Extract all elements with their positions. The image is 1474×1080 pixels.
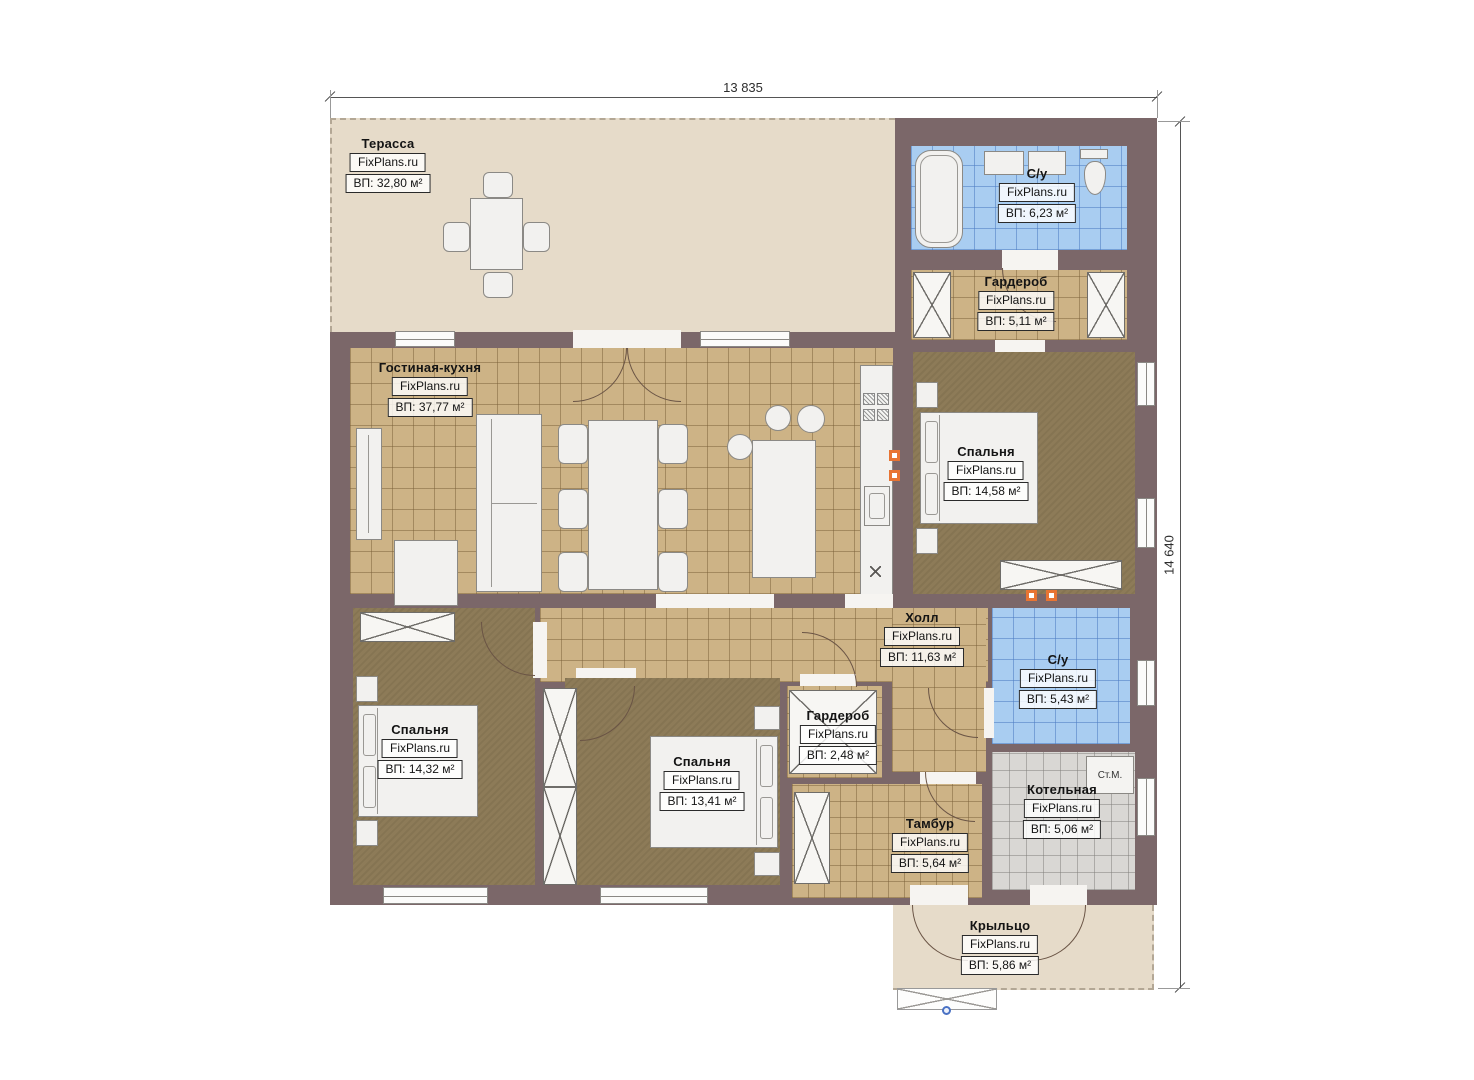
- room-name: Гостиная-кухня: [379, 360, 481, 375]
- dimension-height-label: 14 640: [1162, 535, 1177, 575]
- area-box: ВП: 2,48 м²: [799, 746, 877, 765]
- dimension-extension: [1158, 988, 1190, 989]
- dimension-line-right: [1180, 122, 1181, 988]
- terrace-table: [470, 198, 523, 270]
- nightstand: [754, 706, 780, 730]
- floor-plan-canvas: Ст.М. Терасса FixPlans.ru ВП: 32,80 м² С…: [0, 0, 1474, 1080]
- room-label-porch: Крыльцо FixPlans.ru ВП: 5,86 м²: [961, 918, 1039, 975]
- brand-box: FixPlans.ru: [962, 935, 1038, 954]
- room-name: Терасса: [362, 136, 415, 151]
- room-label-bedroom-2: Спальня FixPlans.ru ВП: 14,32 м²: [378, 722, 463, 779]
- wardrobe-cabinet: [913, 272, 951, 338]
- door-opening: [995, 340, 1045, 352]
- room-name: Гардероб: [806, 708, 869, 723]
- window: [1137, 778, 1155, 836]
- pillow: [363, 714, 376, 756]
- dining-chair: [658, 552, 688, 592]
- terrace-chair: [483, 272, 513, 298]
- area-box: ВП: 14,58 м²: [944, 482, 1029, 501]
- brand-box: FixPlans.ru: [1024, 799, 1100, 818]
- door-opening: [573, 330, 681, 348]
- room-name: Крыльцо: [970, 918, 1031, 933]
- area-box: ВП: 11,63 м²: [880, 648, 964, 667]
- furniture-detail: [756, 739, 757, 845]
- room-label-bathroom-2: С/у FixPlans.ru ВП: 5,43 м²: [1019, 652, 1097, 709]
- room-label-boiler-room: Котельная FixPlans.ru ВП: 5,06 м²: [1023, 782, 1101, 839]
- area-box: ВП: 5,86 м²: [961, 956, 1039, 975]
- window: [383, 887, 488, 904]
- furniture-detail: [368, 435, 369, 533]
- brand-box: FixPlans.ru: [892, 833, 968, 852]
- pillow: [925, 473, 938, 515]
- room-label-bedroom-1: Спальня FixPlans.ru ВП: 14,58 м²: [944, 444, 1029, 501]
- dimension-extension: [330, 90, 331, 118]
- dining-table: [588, 420, 658, 590]
- kitchen-sink: [864, 486, 890, 526]
- bar-stool: [727, 434, 753, 460]
- coffee-table: [394, 540, 458, 606]
- dining-chair: [558, 424, 588, 464]
- room-name: Спальня: [957, 444, 1015, 459]
- stove-burner: [863, 393, 875, 405]
- window: [1137, 660, 1155, 706]
- furniture-detail: [939, 415, 940, 521]
- pillow: [760, 745, 773, 787]
- built-in-closet: [543, 787, 577, 885]
- room-name: Котельная: [1027, 782, 1097, 797]
- stove-burner: [863, 409, 875, 421]
- window: [600, 887, 708, 904]
- brand-box: FixPlans.ru: [664, 771, 740, 790]
- dimension-width-label: 13 835: [723, 80, 763, 95]
- room-name: Тамбур: [906, 816, 954, 831]
- terrace-chair: [483, 172, 513, 198]
- dimension-extension: [1157, 90, 1158, 118]
- brand-box: FixPlans.ru: [999, 183, 1075, 202]
- door-opening: [910, 885, 968, 905]
- door-opening: [576, 668, 636, 678]
- room-name: Спальня: [673, 754, 731, 769]
- room-label-wardrobe-2: Гардероб FixPlans.ru ВП: 2,48 м²: [799, 708, 877, 765]
- stove-burner: [877, 409, 889, 421]
- window: [1137, 498, 1155, 548]
- room-name: С/у: [1027, 166, 1048, 181]
- dining-chair: [658, 489, 688, 529]
- brand-box: FixPlans.ru: [382, 739, 458, 758]
- brand-box: FixPlans.ru: [800, 725, 876, 744]
- area-box: ВП: 6,23 м²: [998, 204, 1076, 223]
- area-box: ВП: 5,06 м²: [1023, 820, 1101, 839]
- wall-marker: [1046, 590, 1057, 601]
- wardrobe-cabinet: [360, 612, 455, 642]
- passage-opening: [656, 594, 774, 608]
- wardrobe-cabinet: [1000, 560, 1122, 590]
- nightstand: [916, 528, 938, 554]
- sofa: [476, 414, 542, 592]
- room-name: С/у: [1048, 652, 1069, 667]
- room-label-bathroom-1: С/у FixPlans.ru ВП: 6,23 м²: [998, 166, 1076, 223]
- room-name: Спальня: [391, 722, 449, 737]
- bar-stool: [765, 405, 791, 431]
- built-in-closet: [543, 688, 577, 787]
- bar-stool: [797, 405, 825, 433]
- brand-box: FixPlans.ru: [948, 461, 1024, 480]
- dining-chair: [558, 552, 588, 592]
- brand-box: FixPlans.ru: [392, 377, 468, 396]
- nightstand: [356, 676, 378, 702]
- wall-marker: [1026, 590, 1037, 601]
- nightstand: [916, 382, 938, 408]
- dining-chair: [558, 489, 588, 529]
- passage-opening: [845, 594, 893, 608]
- wardrobe-cabinet: [794, 792, 830, 884]
- wall-marker: [889, 470, 900, 481]
- door-opening: [984, 688, 994, 738]
- terrace-chair: [523, 222, 550, 252]
- stove-burner: [877, 393, 889, 405]
- area-box: ВП: 5,43 м²: [1019, 690, 1097, 709]
- door-opening: [533, 622, 547, 678]
- wardrobe-cabinet: [1087, 272, 1125, 338]
- washing-machine-label: Ст.М.: [1098, 770, 1123, 781]
- toilet-tank: [1080, 149, 1108, 159]
- dimension-line-top: [330, 97, 1157, 98]
- brand-box: FixPlans.ru: [350, 153, 426, 172]
- wall-marker: [889, 450, 900, 461]
- door-opening: [1030, 885, 1087, 905]
- kitchen-island: [752, 440, 816, 578]
- room-label-living-kitchen: Гостиная-кухня FixPlans.ru ВП: 37,77 м²: [379, 360, 481, 417]
- pillow: [925, 421, 938, 463]
- bathtub: [915, 150, 963, 248]
- pillow: [363, 766, 376, 808]
- area-box: ВП: 37,77 м²: [388, 398, 473, 417]
- entry-point-marker: [942, 1006, 951, 1015]
- brand-box: FixPlans.ru: [884, 627, 960, 646]
- room-label-hall: Холл FixPlans.ru ВП: 11,63 м²: [880, 610, 964, 667]
- room-label-tambour: Тамбур FixPlans.ru ВП: 5,64 м²: [891, 816, 969, 873]
- room-label-bedroom-3: Спальня FixPlans.ru ВП: 13,41 м²: [660, 754, 745, 811]
- tv-unit: [356, 428, 382, 540]
- area-box: ВП: 5,64 м²: [891, 854, 969, 873]
- brand-box: FixPlans.ru: [1020, 669, 1096, 688]
- kitchen-appliance-mark: [870, 566, 881, 577]
- window: [1137, 362, 1155, 406]
- area-box: ВП: 13,41 м²: [660, 792, 745, 811]
- dining-chair: [658, 424, 688, 464]
- nightstand: [754, 852, 780, 876]
- area-box: ВП: 5,11 м²: [977, 312, 1054, 331]
- terrace-chair: [443, 222, 470, 252]
- dimension-extension: [1158, 121, 1190, 122]
- door-opening: [1002, 250, 1058, 270]
- room-name: Гардероб: [984, 274, 1047, 289]
- window: [395, 331, 455, 347]
- brand-box: FixPlans.ru: [978, 291, 1054, 310]
- nightstand: [356, 820, 378, 846]
- area-box: ВП: 14,32 м²: [378, 760, 463, 779]
- window: [700, 331, 790, 347]
- area-box: ВП: 32,80 м²: [346, 174, 431, 193]
- furniture-detail: [491, 503, 537, 504]
- room-name: Холл: [905, 610, 938, 625]
- room-label-wardrobe-1: Гардероб FixPlans.ru ВП: 5,11 м²: [977, 274, 1054, 331]
- room-label-terrace: Терасса FixPlans.ru ВП: 32,80 м²: [346, 136, 431, 193]
- pillow: [760, 797, 773, 839]
